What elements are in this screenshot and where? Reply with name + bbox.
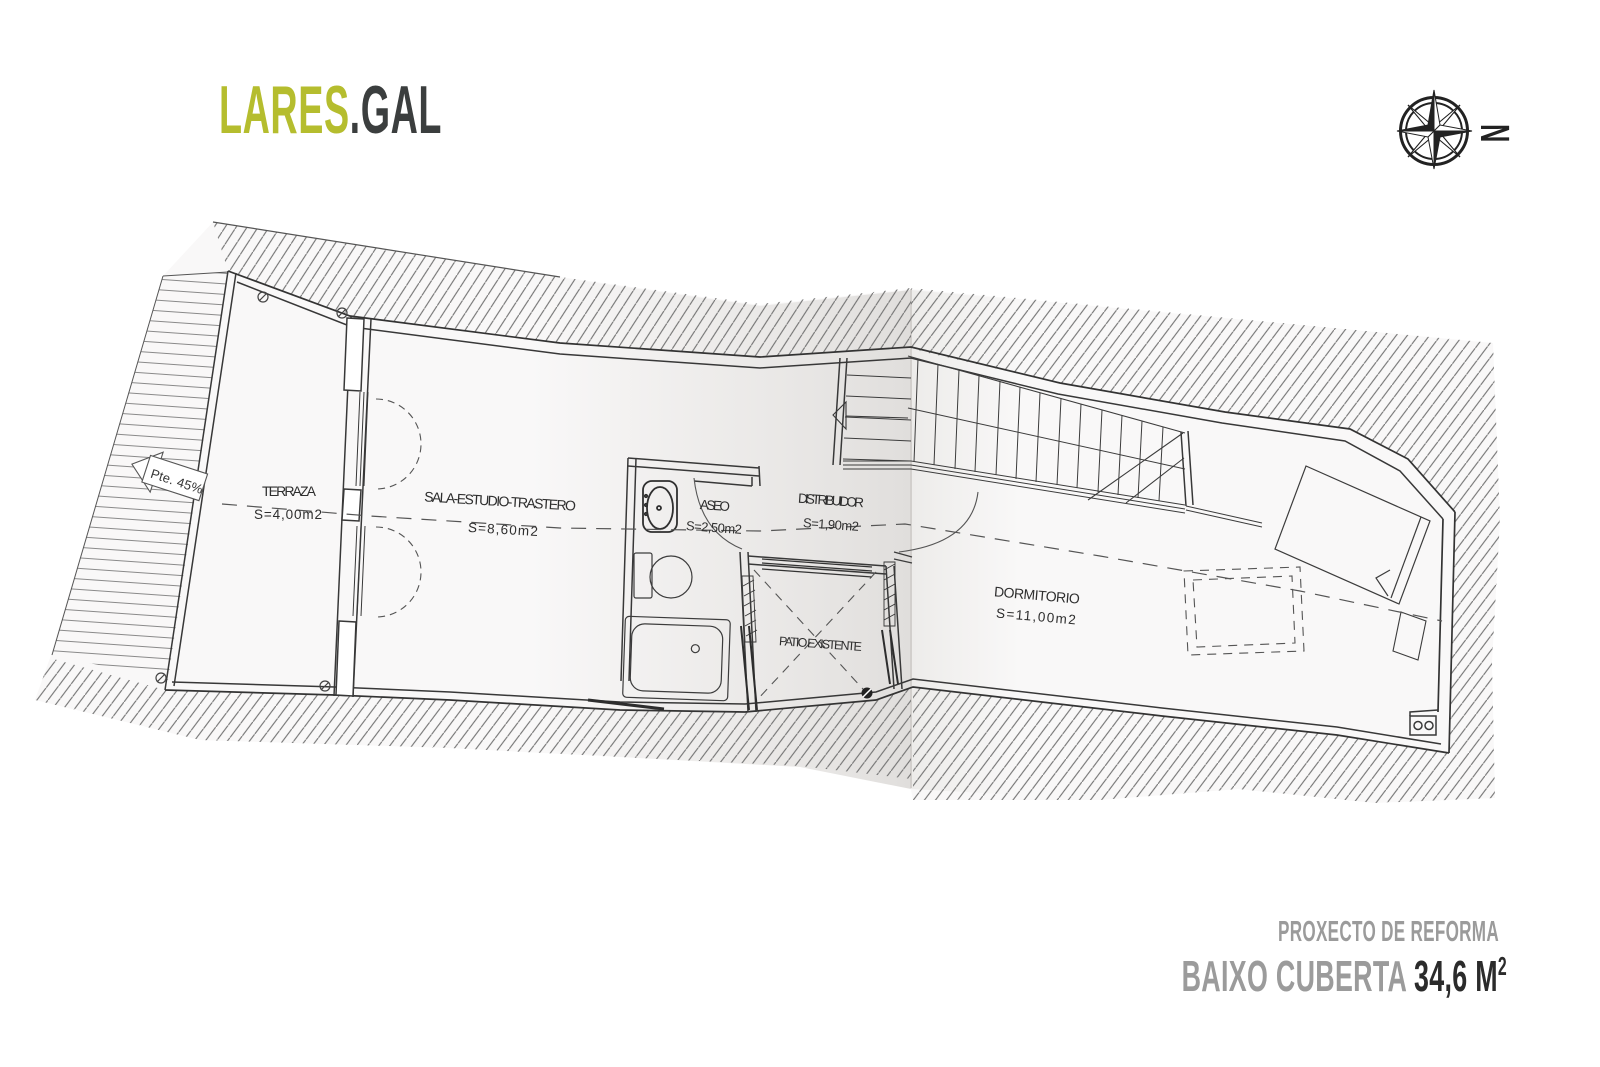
svg-text:BAIXO CUBERTA 34,6 M2: BAIXO CUBERTA 34,6 M2 <box>1182 951 1507 1001</box>
svg-text:LARES.GAL: LARES.GAL <box>219 71 442 148</box>
svg-text:PROXECTO DE REFORMA: PROXECTO DE REFORMA <box>1278 915 1499 948</box>
svg-text:S=4,00m2: S=4,00m2 <box>254 507 322 522</box>
svg-text:ASEO: ASEO <box>699 497 730 514</box>
svg-text:N: N <box>1471 124 1517 142</box>
svg-text:TERRAZA: TERRAZA <box>262 483 317 499</box>
